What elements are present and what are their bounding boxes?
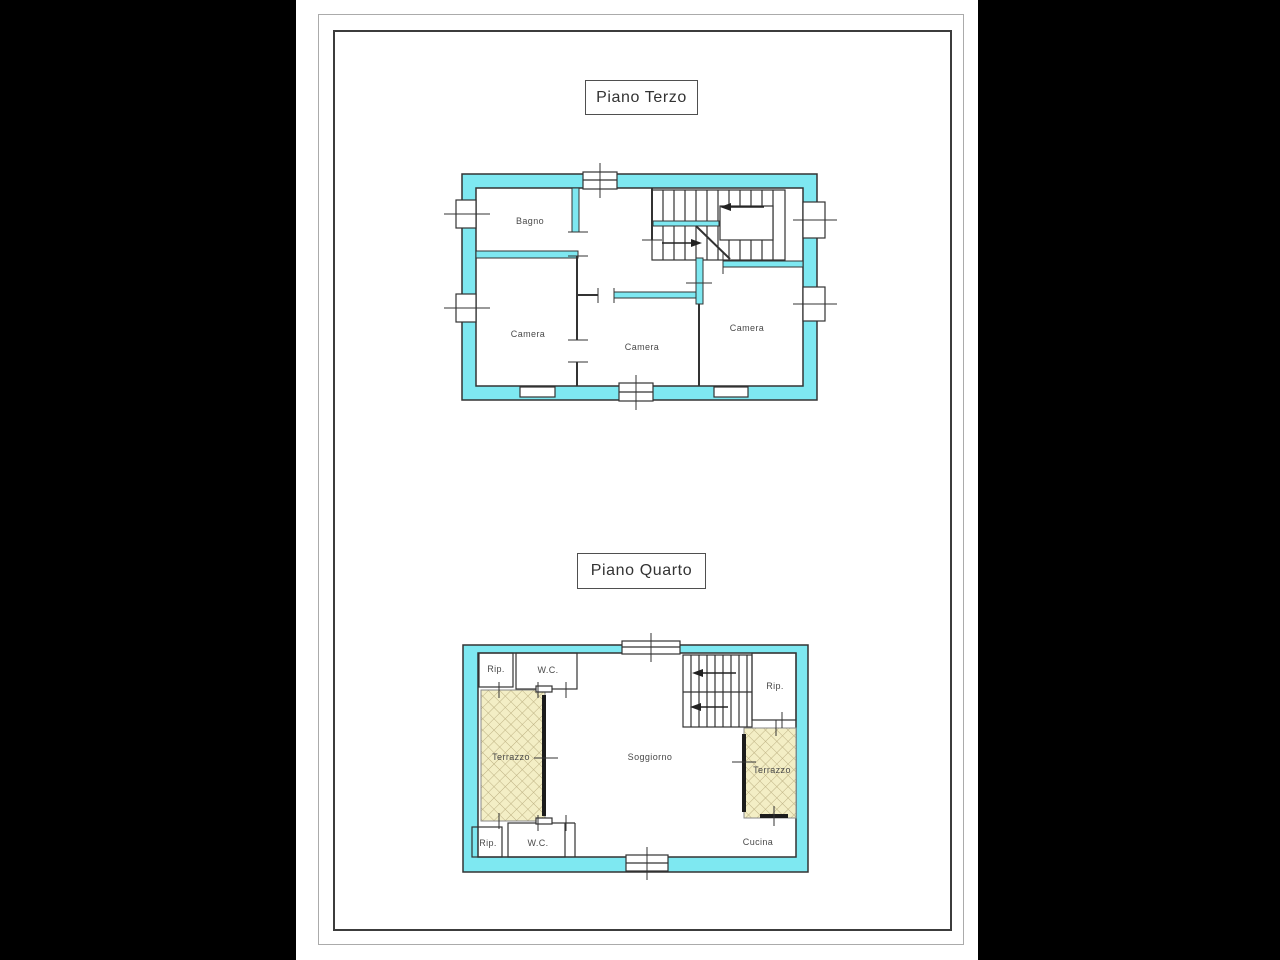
room-label-rip-top-right: Rip. xyxy=(766,681,784,691)
terrace-glazing-wall xyxy=(742,734,746,812)
room-label-rip-bottom-left: Rip. xyxy=(479,838,497,848)
room-label-rip-top-left: Rip. xyxy=(487,664,505,674)
floor-plan-canvas xyxy=(296,0,978,960)
screenshot-root: { "document": { "kind": "floor-plan-shee… xyxy=(0,0,1280,960)
terrace-glazing-wall xyxy=(542,695,546,816)
room-label-camera-right: Camera xyxy=(730,323,764,333)
room-label-camera-middle: Camera xyxy=(625,342,659,352)
stair-landing-rail xyxy=(653,221,719,226)
room-label-camera-left: Camera xyxy=(511,329,545,339)
room-label-wc-bottom: W.C. xyxy=(527,838,548,848)
piano-terzo-plan xyxy=(444,163,837,410)
room-label-cucina: Cucina xyxy=(743,837,773,847)
room-label-terrazzo-right: Terrazzo xyxy=(753,765,791,775)
wall-niche-2 xyxy=(714,387,748,397)
drawing-sheet: Piano Terzo Piano Quarto xyxy=(296,0,978,960)
room-label-wc-top: W.C. xyxy=(537,665,558,675)
room-label-terrazzo-left: Terrazzo xyxy=(492,752,530,762)
wall-niche-1 xyxy=(520,387,555,397)
room-label-bagno: Bagno xyxy=(516,216,544,226)
room-label-soggiorno: Soggiorno xyxy=(628,752,673,762)
